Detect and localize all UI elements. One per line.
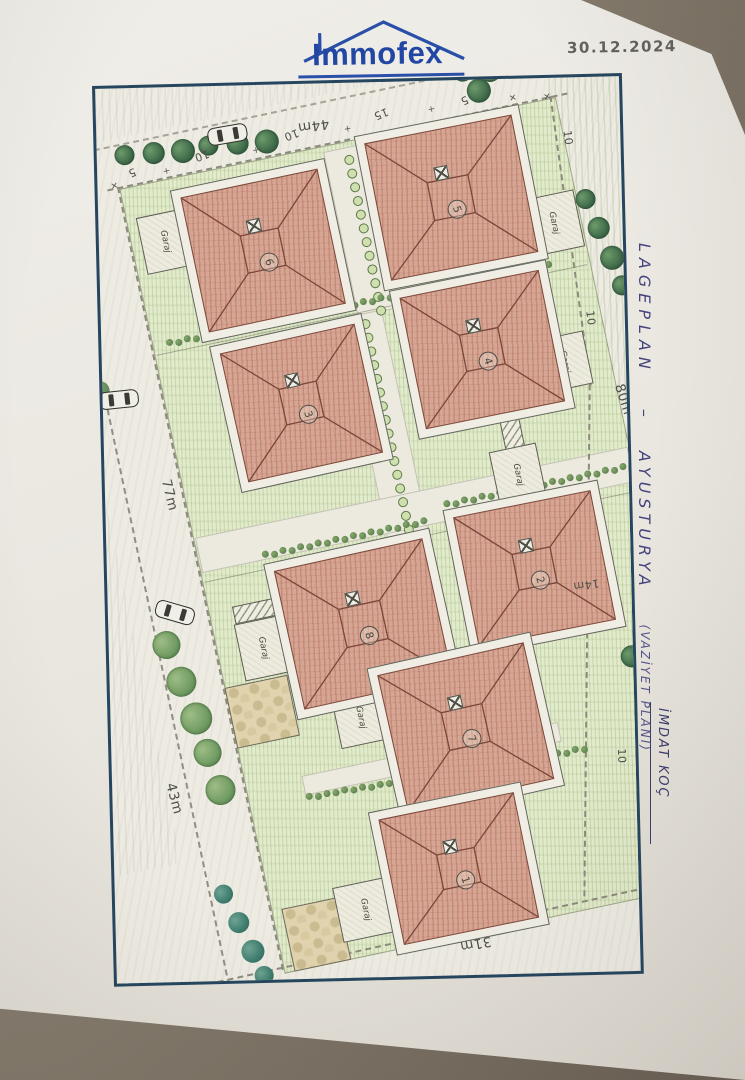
car-rear-window bbox=[124, 392, 130, 404]
small-dimension: 10 bbox=[561, 130, 576, 147]
garage-label: Garaj bbox=[358, 897, 373, 921]
chimney-mark bbox=[246, 218, 263, 235]
site-drawing: MEVCUT BİNA' Nakli sonra alınacak 40m te… bbox=[124, 77, 644, 987]
house-plot: 1 bbox=[368, 781, 550, 955]
house-roof: 6 bbox=[180, 169, 345, 333]
car-windshield bbox=[164, 604, 172, 617]
roof-hip-lines bbox=[378, 643, 553, 810]
chimney-mark bbox=[447, 694, 464, 711]
house-plot: 2 bbox=[442, 480, 626, 658]
garage-label: Garaj bbox=[158, 229, 173, 253]
tree bbox=[226, 910, 251, 935]
roof-hip-lines bbox=[365, 116, 537, 280]
chimney-mark bbox=[518, 537, 534, 553]
small-dimension: 10 bbox=[583, 310, 598, 326]
margin-title-country: AYUSTURYA bbox=[636, 451, 655, 591]
house-plot: 4 bbox=[389, 259, 576, 440]
roof-hip-lines bbox=[401, 271, 564, 428]
margin-title-separator: – bbox=[636, 409, 655, 417]
chimney-mark bbox=[433, 165, 449, 181]
garage-label: Garaj bbox=[256, 636, 271, 660]
car-rear-window bbox=[232, 127, 239, 140]
garage-label: Garaj bbox=[546, 211, 561, 235]
house-roof: 2 bbox=[453, 490, 616, 647]
chimney-mark bbox=[465, 318, 481, 334]
tree bbox=[212, 883, 235, 906]
tree bbox=[177, 700, 215, 738]
small-dimension: 5 bbox=[126, 165, 138, 180]
survey-tick-mark: ✕ bbox=[508, 93, 517, 104]
tree bbox=[113, 143, 137, 167]
survey-tick-mark: ✕ bbox=[110, 181, 119, 192]
survey-tick-mark: + bbox=[343, 124, 352, 135]
roof-hip-lines bbox=[182, 170, 345, 332]
house-plot: 6 bbox=[170, 158, 357, 343]
house-plot: 5 bbox=[354, 104, 549, 291]
author-signature: İMDAT KOÇ bbox=[650, 702, 670, 844]
logo-text: Immofex bbox=[312, 35, 444, 73]
cobblestone-patch bbox=[225, 675, 300, 749]
tree bbox=[164, 664, 200, 700]
car-windshield bbox=[108, 394, 114, 406]
car-windshield bbox=[217, 129, 224, 142]
survey-tick-mark: + bbox=[427, 104, 436, 115]
chimney-mark bbox=[344, 591, 361, 608]
car bbox=[98, 389, 140, 411]
house-roof: 5 bbox=[364, 115, 538, 281]
house-roof: 1 bbox=[378, 792, 539, 945]
tree bbox=[141, 140, 167, 166]
photo-date: 30.12.2024 bbox=[567, 37, 677, 57]
tree bbox=[191, 736, 224, 769]
photo-of-site-plan: Immofex 30.12.2024 LAGEPLAN – AYUSTURYA … bbox=[0, 0, 745, 1080]
dimension-label-top: 44m bbox=[297, 115, 331, 135]
dimension-label-left: 77m bbox=[158, 478, 181, 513]
chimney-mark bbox=[284, 372, 301, 389]
car-rear-window bbox=[179, 608, 187, 621]
roof-hip-lines bbox=[380, 793, 538, 944]
small-dimension: 10 bbox=[615, 748, 628, 763]
tree bbox=[239, 938, 266, 965]
roof-hip-lines bbox=[221, 325, 382, 481]
margin-title-lageplan: LAGEPLAN bbox=[636, 243, 655, 375]
survey-tick-mark: + bbox=[162, 166, 171, 177]
roof-hip-lines bbox=[454, 491, 615, 645]
car bbox=[153, 598, 196, 626]
house-roof: 7 bbox=[377, 642, 554, 812]
house-roof: 3 bbox=[220, 324, 383, 483]
chimney-mark bbox=[442, 838, 459, 855]
plan-frame: MEVCUT BİNA' Nakli sonra alınacak 40m te… bbox=[92, 73, 644, 987]
garage-label: Garaj bbox=[511, 463, 526, 487]
house-roof: 4 bbox=[399, 270, 565, 429]
garage-label: Garaj bbox=[353, 705, 368, 729]
tree bbox=[203, 772, 239, 808]
small-dimension: 15 bbox=[372, 105, 391, 123]
